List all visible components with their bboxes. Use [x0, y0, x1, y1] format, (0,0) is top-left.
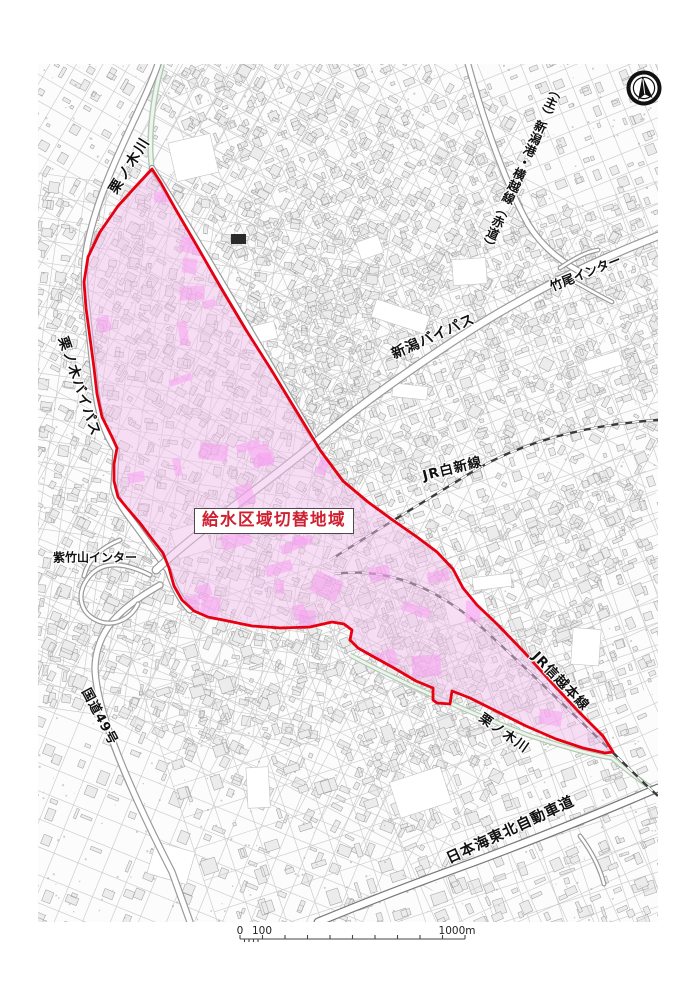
- north-arrow-icon: [627, 71, 662, 106]
- scale-bar: [240, 935, 465, 942]
- basemap-canvas: [0, 0, 700, 990]
- map-page: 栗ノ木川 （主）新潟港・横越線（赤道） 竹尾インター 新潟バイパス JR白新線 …: [0, 0, 700, 990]
